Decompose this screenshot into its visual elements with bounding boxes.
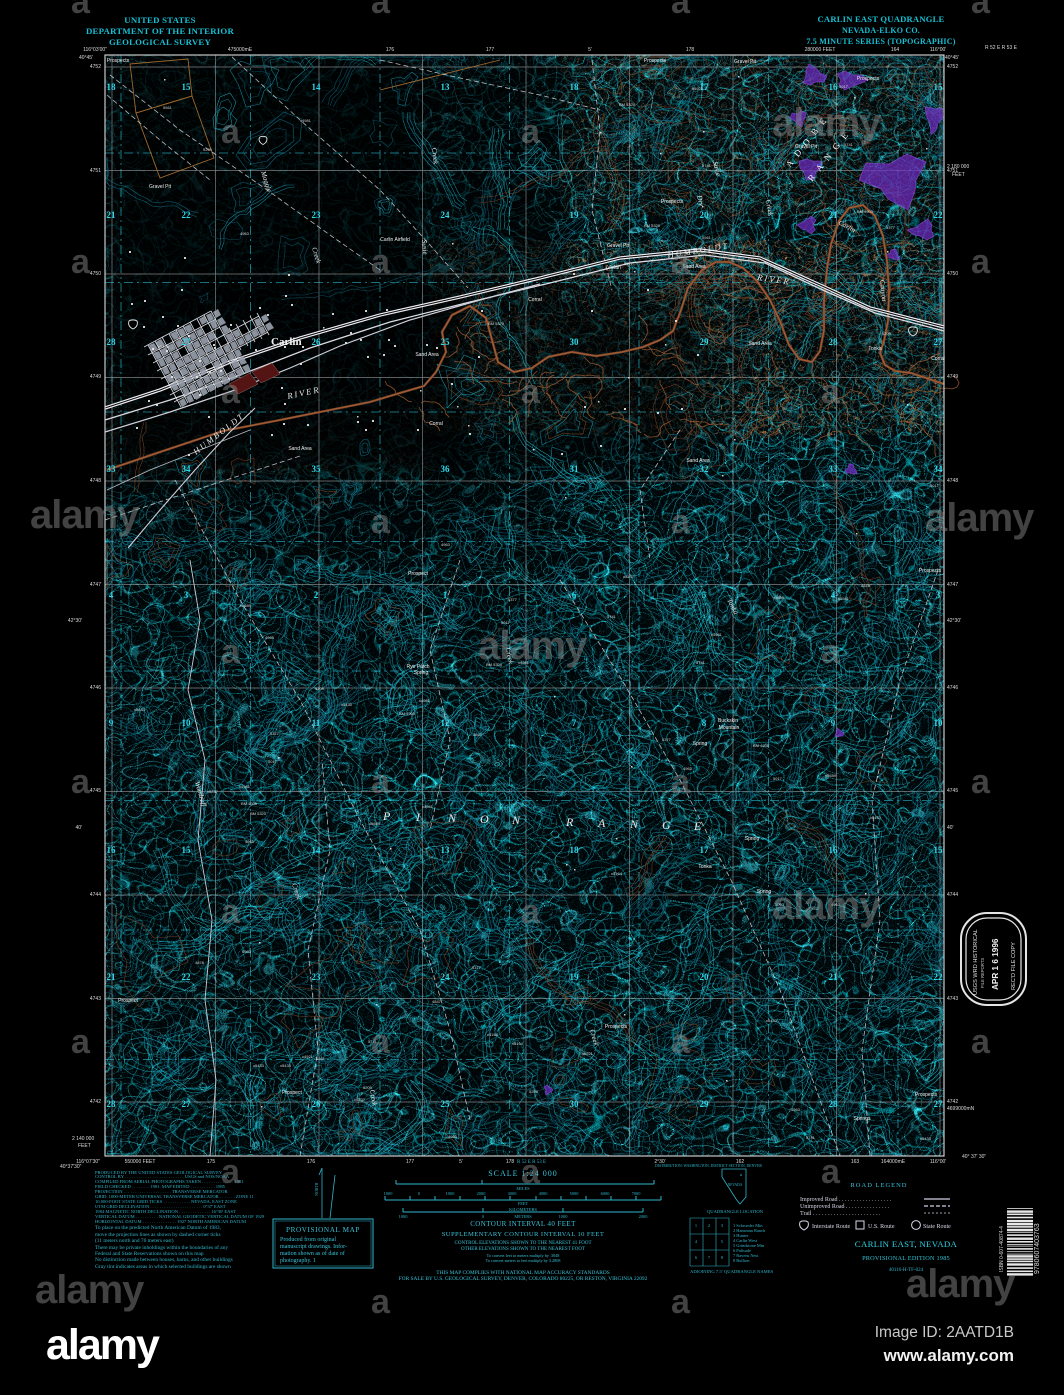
svg-text:UNITED STATES: UNITED STATES [124,15,195,25]
svg-text:x4921: x4921 [302,1054,314,1059]
svg-text:Corral: Corral [429,421,443,427]
svg-text:25: 25 [441,1099,451,1109]
svg-text:18: 18 [570,82,580,92]
svg-text:7: 7 [572,718,577,728]
svg-text:Image ID: 2AATD1B: Image ID: 2AATD1B [875,1324,1014,1341]
svg-text:27: 27 [182,1099,192,1109]
svg-text:x4921: x4921 [582,1051,594,1056]
svg-text:Sand Area: Sand Area [288,446,312,452]
svg-text:116°03'00": 116°03'00" [83,47,107,53]
svg-text:1: 1 [443,590,448,600]
svg-text:a: a [821,373,841,411]
svg-text:alamy: alamy [478,624,588,668]
svg-text:1000: 1000 [399,1214,409,1219]
svg-text:9: 9 [109,718,114,728]
svg-text:a: a [371,0,391,21]
svg-text:x4981: x4981 [838,596,850,601]
svg-text:Prospects: Prospects [605,1024,628,1030]
svg-text:34: 34 [182,464,192,474]
svg-text:Carlin: Carlin [271,336,302,348]
svg-text:x4981: x4981 [239,784,251,789]
svg-text:1000: 1000 [384,1191,394,1196]
svg-text:a: a [971,763,991,801]
svg-text:2 140 000: 2 140 000 [72,1136,94,1142]
svg-text:4847: 4847 [473,732,483,737]
svg-text:4750: 4750 [90,271,101,277]
svg-text:4746: 4746 [90,685,101,691]
svg-text:Spring: Spring [693,741,708,747]
svg-text:4750: 4750 [947,271,958,277]
svg-text:5561: 5561 [702,235,712,240]
svg-text:9: 9 [831,718,836,728]
svg-text:14: 14 [312,82,322,92]
svg-text:x5433: x5433 [341,702,353,707]
svg-text:4963: 4963 [245,839,255,844]
svg-text:29: 29 [700,1099,710,1109]
svg-text:2: 2 [314,590,319,600]
svg-text:CONTROL ELEVATIONS SHOWN TO TH: CONTROL ELEVATIONS SHOWN TO THE NEAREST … [455,1241,592,1246]
svg-text:5': 5' [588,47,592,53]
svg-text:21: 21 [829,972,839,982]
svg-text:21: 21 [107,972,117,982]
svg-text:21: 21 [107,210,117,220]
svg-text:4751: 4751 [90,168,101,174]
svg-text:a: a [671,1023,691,1061]
svg-text:METERS: METERS [514,1214,532,1219]
svg-text:19: 19 [570,972,580,982]
svg-text:4748: 4748 [90,478,101,484]
svg-text:a: a [521,1153,541,1191]
svg-text:Spring: Spring [414,670,429,676]
svg-text:19: 19 [570,210,580,220]
svg-text:FEET: FEET [78,1143,91,1149]
svg-text:4742: 4742 [947,1099,958,1105]
svg-text:22: 22 [934,972,944,982]
svg-text:mation shown as of date of: mation shown as of date of [280,1250,345,1257]
svg-text:475000mE: 475000mE [228,47,253,53]
svg-text:164000mE: 164000mE [881,1159,906,1165]
svg-text:7000: 7000 [632,1191,642,1196]
svg-text:18: 18 [107,82,117,92]
svg-text:(11 meters north and 76 meters: (11 meters north and 76 meters east) [95,1237,174,1244]
svg-text:x4981: x4981 [300,118,312,123]
svg-text:5209: 5209 [882,331,892,336]
svg-text:116°00': 116°00' [930,1159,947,1165]
svg-text:7.5 MINUTE SERIES (TOPOGRAPHIC: 7.5 MINUTE SERIES (TOPOGRAPHIC) [806,37,955,46]
svg-text:Prospects: Prospects [857,76,880,82]
svg-text:3: 3 [184,590,189,600]
svg-text:Prospect: Prospect [408,571,428,577]
svg-text:25: 25 [441,337,451,347]
svg-text:5377: 5377 [662,737,672,742]
svg-text:No distinction made between ho: No distinction made between houses, barn… [95,1257,233,1263]
svg-text:OTHER ELEVATIONS SHOWN TO THE: OTHER ELEVATIONS SHOWN TO THE NEAREST FO… [461,1247,585,1252]
svg-text:5377: 5377 [886,225,896,230]
svg-text:176: 176 [386,47,395,53]
svg-text:163: 163 [851,1159,860,1165]
svg-text:BM 5320: BM 5320 [488,321,505,326]
svg-text:18: 18 [570,845,580,855]
svg-text:KILOMETERS: KILOMETERS [509,1207,537,1212]
svg-text:Corral: Corral [528,297,542,303]
svg-text:G: G [662,818,671,832]
svg-text:a: a [371,503,391,541]
svg-text:5741: 5741 [607,614,617,619]
svg-text:Prospects: Prospects [644,58,667,64]
svg-text:24: 24 [441,210,451,220]
svg-text:8: 8 [702,718,707,728]
svg-text:5561: 5561 [163,105,173,110]
svg-text:164: 164 [891,47,900,53]
svg-text:FILE REPORTS: FILE REPORTS [980,958,985,988]
svg-text:ADJOINING 7.5’ QUADRANGLE NAME: ADJOINING 7.5’ QUADRANGLE NAMES [690,1269,774,1274]
svg-text:photography.: photography. 1 [280,1258,316,1264]
svg-text:alamy: alamy [30,493,140,537]
svg-text:34: 34 [934,464,944,474]
svg-text:32: 32 [700,464,710,474]
svg-text:6000: 6000 [601,1191,611,1196]
svg-text:GEOLOGICAL SURVEY: GEOLOGICAL SURVEY [109,37,212,47]
svg-text:24: 24 [441,972,451,982]
svg-text:4744: 4744 [90,892,101,898]
svg-text:a: a [221,373,241,411]
svg-text:CARLIN EAST QUADRANGLE: CARLIN EAST QUADRANGLE [818,14,945,24]
svg-text:alamy: alamy [772,884,882,928]
svg-text:28: 28 [107,1099,117,1109]
svg-text:22: 22 [182,972,192,982]
svg-text:5561: 5561 [316,1056,326,1061]
svg-text:11: 11 [312,718,321,728]
svg-text:There may be private inholding: There may be private inholdings within t… [95,1244,228,1251]
svg-text:26: 26 [312,337,322,347]
svg-text:N: N [511,813,521,827]
svg-text:Sand Area: Sand Area [415,352,439,358]
svg-text:a: a [71,243,91,281]
svg-text:40°37'30": 40°37'30" [60,1164,82,1170]
svg-text:42°30': 42°30' [68,618,82,624]
svg-text:116°00': 116°00' [930,47,947,53]
svg-text:15: 15 [182,845,192,855]
svg-text:FEET: FEET [518,1201,529,1206]
svg-text:alamy: alamy [46,1321,160,1369]
svg-text:Prospects: Prospects [915,1092,938,1098]
svg-text:To place on the predicted Nort: To place on the predicted North American… [95,1224,222,1231]
svg-text:40°45': 40°45' [945,55,959,61]
svg-text:4744: 4744 [947,892,958,898]
svg-text:42°30': 42°30' [947,618,961,624]
svg-text:x5689: x5689 [240,603,252,608]
svg-text:N: N [447,811,457,825]
svg-text:a: a [521,113,541,151]
svg-text:33: 33 [107,464,117,474]
svg-text:4745: 4745 [947,788,958,794]
svg-text:BM 5320: BM 5320 [250,811,267,816]
svg-text:29: 29 [700,337,710,347]
svg-text:4699000mN: 4699000mN [947,1106,975,1112]
svg-text:21: 21 [829,210,839,220]
svg-text:FEET: FEET [952,172,965,178]
svg-text:USGS WRD HISTORICAL: USGS WRD HISTORICAL [973,929,979,995]
svg-text:28: 28 [829,1099,839,1109]
svg-text:To convert meters to feet mult: To convert meters to feet multiply by 3.… [486,1258,561,1263]
svg-text:4: 4 [109,590,114,600]
svg-text:20: 20 [700,972,710,982]
svg-text:28: 28 [829,337,839,347]
svg-text:178: 178 [686,47,695,53]
svg-text:4963: 4963 [265,635,275,640]
svg-text:5741: 5741 [702,163,712,168]
svg-text:alamy: alamy [35,1268,145,1312]
svg-text:4752: 4752 [90,64,101,70]
svg-text:NEVADA: NEVADA [728,1183,743,1187]
svg-text:5741: 5741 [806,1135,816,1140]
svg-text:Prospect: Prospect [118,998,138,1004]
svg-text:a: a [71,1023,91,1061]
svg-text:5209: 5209 [529,1089,539,1094]
svg-text:QUADRANGLE LOCATION: QUADRANGLE LOCATION [707,1209,764,1214]
svg-text:176: 176 [307,1159,316,1165]
svg-text:HORIZONTAL DATUM . . . . . . .: HORIZONTAL DATUM . . . . . . . . . . . .… [95,1219,246,1224]
svg-text:12: 12 [441,718,451,728]
svg-text:manuscript drawings. Infor-: manuscript drawings. Infor- [280,1243,347,1250]
svg-text:4000: 4000 [539,1191,549,1196]
svg-text:a: a [971,243,991,281]
svg-text:a: a [71,0,91,21]
svg-text:PROVISIONAL EDITION 1985: PROVISIONAL EDITION 1985 [862,1255,950,1262]
svg-text:Improved Road . . . . . . . .: Improved Road . . . . . . . . . . . . . … [800,1197,892,1203]
svg-text:5017: 5017 [773,776,783,781]
svg-text:36: 36 [441,464,451,474]
svg-text:23: 23 [312,972,322,982]
svg-text:x5164: x5164 [512,1041,524,1046]
svg-text:BM 5320: BM 5320 [619,102,636,107]
svg-text:31: 31 [570,464,580,474]
svg-text:27: 27 [934,337,944,347]
svg-text:NORTH: NORTH [314,1182,319,1196]
svg-text:33: 33 [829,464,839,474]
svg-text:x5689: x5689 [773,595,785,600]
svg-text:5209: 5209 [315,686,325,691]
svg-text:5209: 5209 [203,147,213,152]
svg-text:Buckskin: Buckskin [718,718,738,724]
svg-text:BM 4903: BM 4903 [399,711,416,716]
svg-text:State Route: State Route [923,1224,951,1230]
svg-text:Gravel Pit: Gravel Pit [607,243,630,249]
svg-text:alamy: alamy [772,101,882,145]
svg-text:Spring: Spring [757,889,772,895]
svg-text:a: a [371,243,391,281]
svg-text:15: 15 [182,82,192,92]
svg-text:a: a [221,113,241,151]
svg-text:x5433: x5433 [870,815,882,820]
svg-text:4746: 4746 [947,685,958,691]
svg-text:P: P [382,809,391,823]
svg-text:ROAD LEGEND: ROAD LEGEND [850,1182,907,1189]
svg-text:a: a [671,1283,691,1321]
svg-text:4878: 4878 [861,583,871,588]
svg-text:5377: 5377 [624,261,634,266]
svg-text:40° 37' 30": 40° 37' 30" [962,1154,986,1160]
svg-text:4742: 4742 [90,1099,101,1105]
svg-text:4747: 4747 [947,582,958,588]
svg-text:x5164: x5164 [487,1032,499,1037]
svg-text:2000: 2000 [639,1214,649,1219]
svg-text:a: a [371,1283,391,1321]
svg-text:177: 177 [406,1159,415,1165]
svg-text:177: 177 [486,47,495,53]
svg-text:a: a [671,0,691,21]
svg-text:Interstate Route: Interstate Route [812,1224,850,1230]
svg-text:2000: 2000 [477,1191,487,1196]
svg-text:a: a [971,1023,991,1061]
svg-text:23: 23 [312,210,322,220]
svg-text:a: a [221,633,241,671]
svg-text:30: 30 [570,1099,580,1109]
svg-text:x5237: x5237 [354,1097,366,1102]
svg-text:a: a [671,243,691,281]
svg-text:4747: 4747 [90,582,101,588]
svg-text:x5237: x5237 [207,789,219,794]
svg-text:www.alamy.com: www.alamy.com [883,1346,1014,1365]
svg-text:BM 4936: BM 4936 [753,743,770,748]
svg-text:Prospects: Prospects [661,199,684,205]
svg-text:Mountain: Mountain [719,725,740,731]
svg-text:175: 175 [207,1159,216,1165]
svg-text:Tonka: Tonka [698,864,712,870]
svg-text:15: 15 [934,845,944,855]
svg-text:O: O [480,812,489,826]
svg-text:NEVADA-ELKO CO.: NEVADA-ELKO CO. [842,26,920,35]
svg-text:13: 13 [441,845,451,855]
svg-text:R: R [565,815,574,829]
svg-text:x5164: x5164 [611,871,623,876]
svg-text:DEPARTMENT OF THE INTERIOR: DEPARTMENT OF THE INTERIOR [86,26,234,36]
svg-text:BM 4936: BM 4936 [241,801,258,806]
svg-text:x5433: x5433 [253,1063,265,1068]
svg-text:1000: 1000 [446,1191,456,1196]
svg-text:BM 4903: BM 4903 [857,209,874,214]
svg-text:x4921: x4921 [692,86,704,91]
svg-text:9780607403763: 9780607403763 [1034,1223,1041,1274]
svg-text:CONTOUR INTERVAL 40 FEET: CONTOUR INTERVAL 40 FEET [470,1220,576,1228]
svg-text:5: 5 [702,590,707,600]
svg-text:40°45': 40°45' [79,55,93,61]
svg-text:Sand Area: Sand Area [686,458,710,464]
svg-text:4749: 4749 [947,374,958,380]
svg-text:178: 178 [506,1159,515,1165]
svg-text:Sand Area: Sand Area [748,341,772,347]
svg-text:3: 3 [936,590,941,600]
svg-text:6: 6 [572,590,577,600]
svg-text:REC’D FILE COPY: REC’D FILE COPY [1011,942,1017,990]
svg-text:8 Bullion: 8 Bullion [733,1258,750,1263]
svg-text:R 52 E R 53 E: R 52 E R 53 E [985,45,1018,51]
svg-text:a: a [821,633,841,671]
svg-text:1000: 1000 [559,1214,569,1219]
svg-text:PROVISIONAL MAP: PROVISIONAL MAP [286,1226,360,1234]
svg-text:16: 16 [107,845,117,855]
svg-text:4: 4 [831,590,836,600]
svg-text:5377: 5377 [472,965,482,970]
svg-text:Tonka: Tonka [868,346,882,352]
svg-text:x5433: x5433 [158,344,170,349]
svg-text:Trail . . . . . . . . . . . .: Trail . . . . . . . . . . . . . . . . . … [800,1211,881,1217]
svg-text:27: 27 [934,1099,944,1109]
svg-text:4963: 4963 [242,949,252,954]
svg-text:A: A [597,816,606,830]
svg-text:Prospects: Prospects [107,58,130,64]
svg-text:22: 22 [934,210,944,220]
svg-text:1: 1 [695,1223,697,1228]
svg-text:550000 FEET: 550000 FEET [125,1159,156,1165]
svg-text:alamy: alamy [906,1262,1016,1306]
svg-text:CARLIN EAST, NEVADA: CARLIN EAST, NEVADA [855,1239,958,1249]
svg-text:N: N [629,817,639,831]
svg-text:Gravel Pit: Gravel Pit [734,59,757,65]
svg-text:a: a [71,763,91,801]
svg-text:40': 40' [947,825,954,831]
svg-text:x5237: x5237 [623,574,635,579]
svg-text:5017: 5017 [930,483,940,488]
svg-text:5741: 5741 [696,660,706,665]
svg-text:5377: 5377 [270,731,280,736]
svg-text:Prospects: Prospects [919,568,942,574]
svg-text:BM 5320: BM 5320 [644,223,661,228]
svg-text:x5689: x5689 [825,773,837,778]
svg-text:a: a [671,503,691,541]
svg-text:Springs: Springs [854,1116,871,1122]
svg-text:a: a [221,893,241,931]
svg-text:a: a [971,0,991,21]
svg-text:4963: 4963 [791,1107,801,1112]
svg-text:a: a [221,1153,241,1191]
svg-text:5': 5' [459,1159,463,1165]
svg-text:Prospect: Prospect [282,1090,302,1096]
svg-text:4878: 4878 [195,960,205,965]
svg-text:a: a [671,763,691,801]
svg-text:Produced from original: Produced from original [280,1236,336,1243]
svg-text:3000: 3000 [508,1191,518,1196]
svg-text:a: a [521,373,541,411]
svg-text:4963: 4963 [448,1134,458,1139]
svg-text:U.S. Route: U.S. Route [868,1224,895,1230]
svg-text:x5433: x5433 [280,1063,292,1068]
svg-text:x5689: x5689 [369,821,381,826]
svg-text:4963: 4963 [441,542,451,547]
svg-text:28: 28 [107,337,117,347]
svg-text:10: 10 [182,718,192,728]
svg-text:27: 27 [182,337,192,347]
svg-text:a: a [371,763,391,801]
svg-text:x4981: x4981 [419,698,431,703]
svg-text:22: 22 [182,210,192,220]
svg-text:5377: 5377 [508,597,518,602]
svg-text:4847: 4847 [432,999,442,1004]
svg-text:a: a [521,893,541,931]
svg-text:5000: 5000 [570,1191,580,1196]
svg-text:5017: 5017 [268,759,278,764]
svg-text:16: 16 [829,845,839,855]
svg-text:10: 10 [934,718,944,728]
svg-text:20: 20 [700,210,710,220]
svg-text:FOR SALE BY U.S. GEOLOGICAL SU: FOR SALE BY U.S. GEOLOGICAL SURVEY, DENV… [399,1276,648,1282]
svg-text:30: 30 [570,337,580,347]
svg-text:Gravel Pit: Gravel Pit [149,184,172,190]
svg-text:13: 13 [441,82,451,92]
svg-text:26: 26 [312,1099,322,1109]
svg-text:280000 FEET: 280000 FEET [805,47,836,53]
svg-text:4749: 4749 [90,374,101,380]
